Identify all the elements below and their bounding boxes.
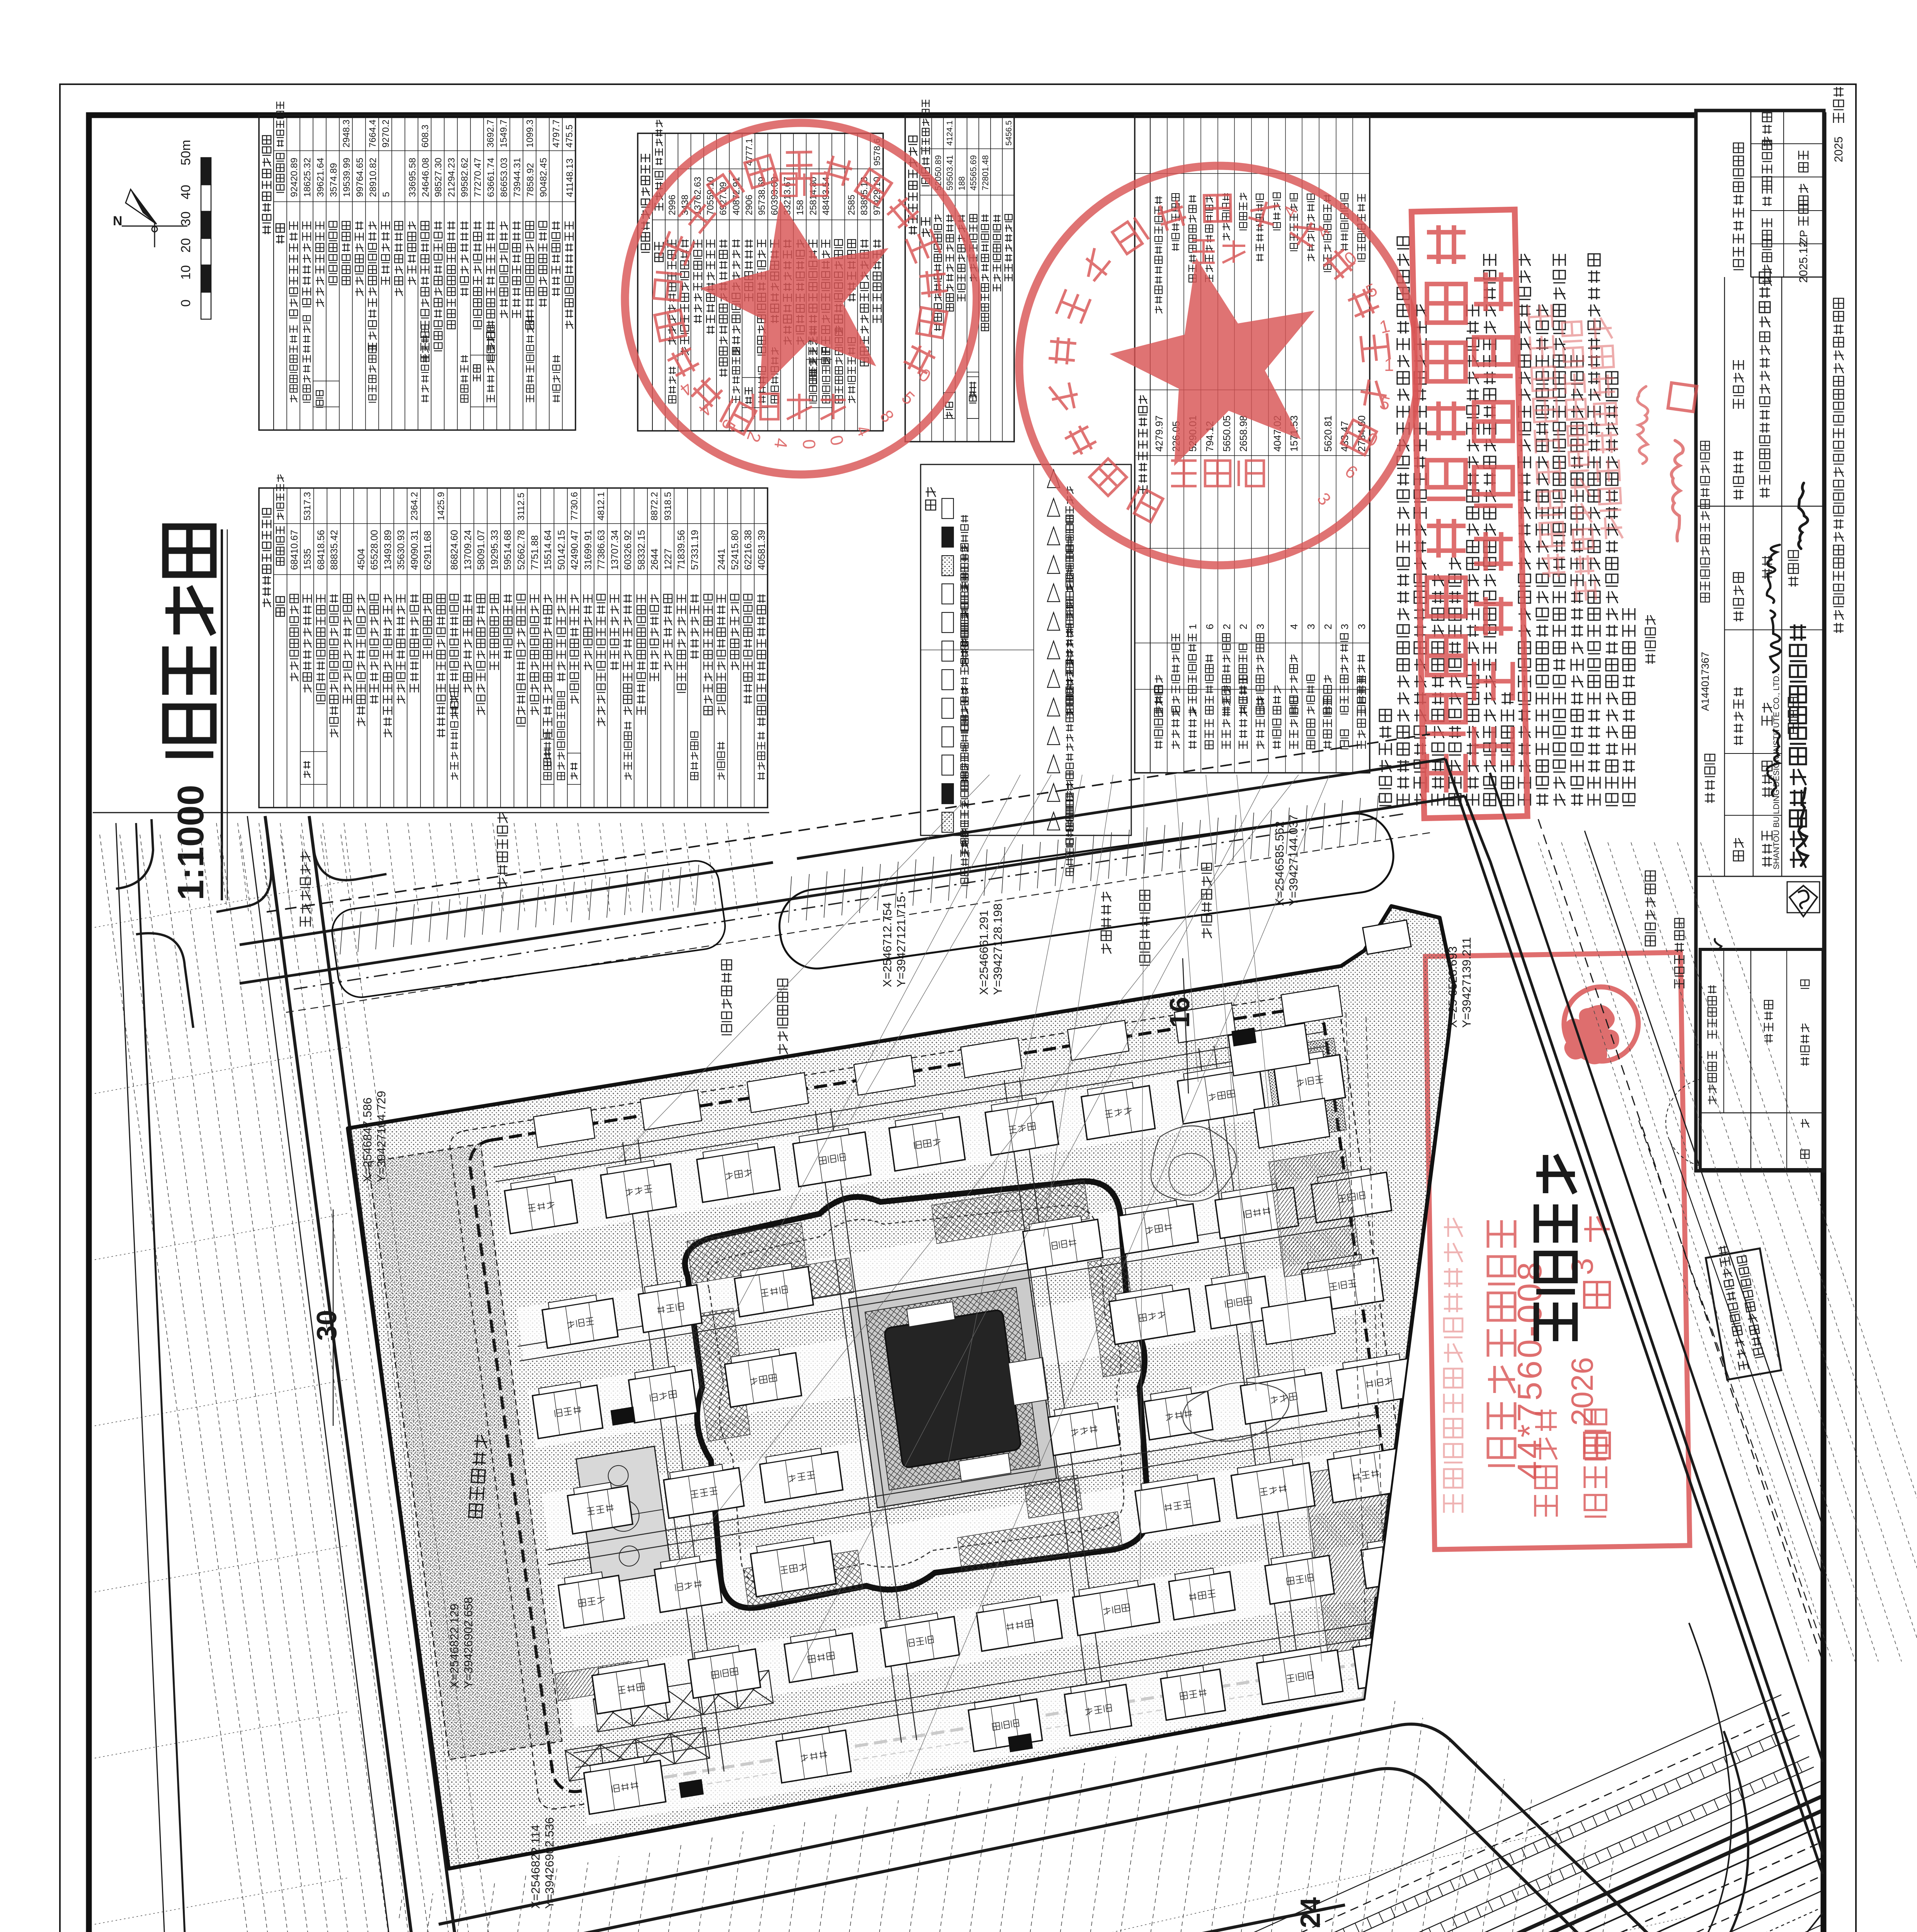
svg-text:0: 0 (179, 299, 193, 307)
svg-text:2364.2: 2364.2 (409, 492, 420, 520)
svg-text:X=2546822.129: X=2546822.129 (448, 1604, 461, 1689)
svg-text:35630.93: 35630.93 (396, 530, 407, 570)
svg-text:5650.05: 5650.05 (1221, 415, 1233, 452)
svg-text:Y=39427121.715: Y=39427121.715 (894, 896, 908, 987)
svg-text:Y=39427128.198: Y=39427128.198 (991, 903, 1004, 995)
svg-text:49090.31: 49090.31 (409, 530, 420, 570)
svg-text:42490.47: 42490.47 (569, 530, 580, 570)
svg-text:4797.7: 4797.7 (551, 119, 562, 148)
svg-text:1535: 1535 (302, 549, 313, 570)
svg-text:50m: 50m (179, 140, 193, 165)
svg-text:39621.64: 39621.64 (315, 158, 326, 197)
svg-text:1:1000: 1:1000 (170, 785, 211, 900)
svg-text:Y=39426902.536: Y=39426902.536 (543, 1817, 556, 1909)
svg-text:77386.63: 77386.63 (596, 530, 607, 570)
svg-text:X=2546712.754: X=2546712.754 (880, 902, 894, 987)
svg-text:58332.15: 58332.15 (636, 530, 647, 570)
svg-text:59514.68: 59514.68 (502, 530, 513, 570)
svg-text:63661.74: 63661.74 (486, 158, 496, 197)
svg-text:3: 3 (1305, 624, 1317, 629)
svg-text:9270.2: 9270.2 (381, 119, 391, 148)
svg-text:65528.00: 65528.00 (369, 530, 380, 570)
svg-text:5: 5 (381, 192, 392, 197)
svg-text:13707.34: 13707.34 (609, 530, 620, 570)
svg-text:7664.4: 7664.4 (368, 119, 378, 148)
svg-text:5317.3: 5317.3 (302, 492, 313, 520)
svg-text:2: 2 (1238, 624, 1249, 629)
svg-text:45565.69: 45565.69 (969, 155, 978, 190)
svg-text:86653.03: 86653.03 (499, 158, 509, 197)
svg-text:2026: 2026 (1565, 1357, 1599, 1426)
svg-text:5456.5: 5456.5 (1004, 121, 1013, 146)
svg-text:5620.81: 5620.81 (1322, 415, 1334, 452)
svg-text:158: 158 (795, 200, 805, 215)
svg-text:1227: 1227 (663, 549, 674, 570)
svg-text:4279.97: 4279.97 (1153, 415, 1165, 452)
svg-text:52415.80: 52415.80 (730, 530, 741, 570)
svg-text:SHANTOU BUILDING DESIGN INSTIT: SHANTOU BUILDING DESIGN INSTITUTE CO., L… (1772, 673, 1781, 869)
svg-text:X=2546661.291: X=2546661.291 (977, 910, 991, 995)
svg-text:30: 30 (179, 211, 193, 226)
svg-text:3692.7: 3692.7 (485, 119, 496, 148)
svg-text:2: 2 (1322, 624, 1334, 629)
svg-text:13493.89: 13493.89 (383, 530, 393, 570)
svg-text:13709.24: 13709.24 (463, 530, 473, 570)
svg-text:68418.56: 68418.56 (316, 530, 327, 570)
svg-text:90482.45: 90482.45 (538, 158, 549, 197)
svg-text:33695.58: 33695.58 (407, 158, 418, 197)
svg-text:16: 16 (1165, 997, 1195, 1028)
svg-text:4504: 4504 (356, 549, 367, 570)
svg-text:6: 6 (1204, 624, 1216, 629)
svg-text:7858.92: 7858.92 (525, 163, 536, 197)
svg-text:2644: 2644 (649, 549, 660, 570)
svg-text:4812.1: 4812.1 (596, 492, 606, 520)
svg-text:2025: 2025 (1832, 136, 1845, 162)
svg-text:X=25 6528.693: X=25 6528.693 (1446, 946, 1459, 1028)
svg-text:X=2546822.114: X=2546822.114 (529, 1825, 542, 1909)
svg-text:Y=39426902.658: Y=39426902.658 (461, 1597, 475, 1689)
svg-text:7751.88: 7751.88 (529, 535, 540, 570)
svg-text:19295.33: 19295.33 (489, 530, 500, 570)
svg-text:62216.38: 62216.38 (743, 530, 754, 570)
svg-text:21294.23: 21294.23 (446, 158, 457, 197)
svg-text:2441: 2441 (716, 549, 727, 570)
svg-text:3: 3 (1565, 1258, 1599, 1276)
svg-text:30: 30 (312, 1310, 342, 1341)
svg-text:50142.15: 50142.15 (556, 530, 567, 570)
svg-text:72801.48: 72801.48 (981, 155, 990, 190)
svg-text:62911.68: 62911.68 (422, 531, 433, 570)
svg-text:2658.98: 2658.98 (1238, 415, 1249, 452)
svg-text:Y=39427139.211: Y=39427139.211 (1460, 937, 1473, 1028)
svg-text:73944.31: 73944.31 (512, 158, 523, 197)
svg-text:1099.3: 1099.3 (525, 119, 535, 148)
svg-text:58091.07: 58091.07 (476, 530, 487, 570)
svg-text:24: 24 (1295, 1897, 1326, 1928)
svg-text:60326.92: 60326.92 (623, 530, 633, 570)
svg-text:28910.82: 28910.82 (368, 158, 378, 197)
svg-text:10: 10 (179, 265, 193, 280)
svg-text:7730.6: 7730.6 (569, 492, 580, 520)
svg-text:18625.32: 18625.32 (302, 158, 313, 197)
svg-text:9318.5: 9318.5 (663, 492, 673, 520)
svg-text:77270.47: 77270.47 (473, 158, 483, 197)
svg-text:Y=39427104.729: Y=39427104.729 (375, 1091, 388, 1182)
svg-text:98527.30: 98527.30 (433, 158, 444, 197)
svg-text:41148.13: 41148.13 (565, 158, 575, 197)
svg-text:608.3: 608.3 (420, 125, 431, 148)
svg-text:4124.1: 4124.1 (945, 121, 954, 146)
svg-text:2906: 2906 (744, 195, 754, 215)
svg-text:1: 1 (1187, 624, 1199, 629)
svg-text:15514.64: 15514.64 (543, 530, 553, 570)
svg-text:2996: 2996 (667, 195, 678, 215)
svg-text:3: 3 (1339, 624, 1350, 629)
svg-text:2025.12: 2025.12 (1797, 241, 1810, 283)
svg-text:99582.62: 99582.62 (460, 158, 470, 197)
svg-text:188: 188 (957, 176, 967, 190)
svg-text:68410.67: 68410.67 (289, 530, 300, 570)
svg-text:99764.65: 99764.65 (355, 158, 365, 197)
svg-text:1: 1 (1384, 355, 1394, 375)
svg-text:2948.3: 2948.3 (341, 119, 352, 148)
svg-text:92420.89: 92420.89 (289, 158, 300, 197)
svg-text:475.5: 475.5 (564, 125, 575, 148)
svg-text:A144017367: A144017367 (1699, 652, 1711, 711)
svg-text:24646.08: 24646.08 (421, 158, 431, 197)
svg-text:N: N (113, 214, 123, 228)
svg-text:57331.19: 57331.19 (690, 530, 700, 570)
svg-text:4: 4 (1288, 624, 1300, 629)
svg-text:40: 40 (179, 185, 193, 199)
svg-text:52662.78: 52662.78 (516, 530, 527, 570)
svg-text:86824.60: 86824.60 (449, 530, 460, 570)
svg-text:3574.89: 3574.89 (329, 163, 339, 197)
svg-text:19539.99: 19539.99 (342, 158, 352, 197)
svg-text:31699.91: 31699.91 (583, 530, 594, 570)
svg-text:1549.7: 1549.7 (499, 119, 509, 148)
svg-text:1425.9: 1425.9 (436, 492, 446, 520)
svg-text:8872.2: 8872.2 (649, 492, 660, 520)
svg-text:20: 20 (179, 238, 193, 253)
svg-text:59503.41: 59503.41 (945, 155, 955, 190)
svg-text:88835.42: 88835.42 (329, 530, 340, 570)
svg-text:71839.56: 71839.56 (676, 530, 687, 570)
svg-text:3: 3 (1255, 624, 1266, 629)
svg-text:0: 0 (799, 439, 819, 450)
svg-text:X=2546847.586: X=2546847.586 (361, 1097, 374, 1182)
svg-text:3: 3 (1356, 624, 1367, 629)
svg-text:40581.39: 40581.39 (756, 530, 767, 570)
svg-text:2: 2 (1221, 624, 1233, 629)
svg-text:2585: 2585 (846, 195, 857, 215)
svg-text:3112.5: 3112.5 (516, 493, 526, 520)
